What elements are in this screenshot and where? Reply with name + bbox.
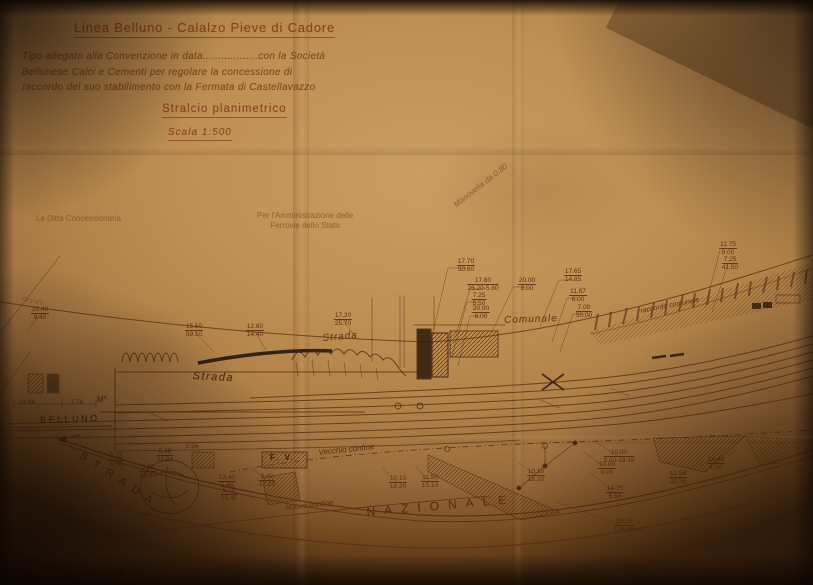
measurements-layer: 17.7050.6017.8026.20-5.8020.008.0017.651… bbox=[0, 0, 813, 585]
measurement-label: 11.759.00 bbox=[719, 241, 737, 256]
measurement-label: 17.2025.70 bbox=[334, 312, 352, 327]
measurement-label: 7.76 bbox=[70, 399, 85, 406]
measurement-label: 20.75124.05 bbox=[614, 518, 634, 533]
measurement-label: 14.755.50 bbox=[606, 485, 624, 500]
measurement-label: 17.6514.85 bbox=[564, 268, 582, 283]
measurement-label: 15.5059.10 bbox=[185, 323, 203, 338]
measurement-label: 5.4631.24 bbox=[157, 448, 173, 463]
measurement-label: 20.008.00 bbox=[518, 277, 536, 292]
measurement-label: 10.000.00 bbox=[598, 461, 616, 476]
measurement-label: 20.008.00 bbox=[472, 305, 490, 320]
measurement-label: 10.1018.20 bbox=[389, 475, 407, 490]
measurement-label: 17.7050.60 bbox=[457, 258, 475, 273]
measurement-label: 7.2541.50 bbox=[722, 256, 738, 271]
measurement-label: 11.5015.10 bbox=[421, 474, 439, 489]
measurement-label: 12.6014.40 bbox=[246, 323, 264, 338]
measurement-label: 9.4017.20 bbox=[259, 473, 275, 488]
measurement-label: 7.0050.00 bbox=[576, 304, 592, 319]
measurement-label: 5.6018.50 bbox=[140, 464, 156, 479]
measurement-label: 14.401.00 bbox=[707, 456, 725, 471]
measurement-label: 5.2015.45 bbox=[221, 487, 237, 502]
measurement-label: 11.876.00 bbox=[569, 288, 587, 303]
measurement-label: 0.56 bbox=[185, 443, 200, 450]
measurement-label: 17.8026.20-5.80 bbox=[467, 277, 498, 292]
measurement-label: 10.1018.20 bbox=[527, 468, 545, 483]
measurement-label: 0.785.00 bbox=[109, 453, 124, 468]
measurement-label: 12.5622.56 bbox=[669, 470, 687, 485]
measurement-label: 14.84 bbox=[18, 399, 36, 406]
measurement-label: 20.409.45 bbox=[31, 306, 49, 321]
photographed-plan-document: 7, Linea Belluno - Calalzo Pieve di Cado… bbox=[0, 0, 813, 585]
